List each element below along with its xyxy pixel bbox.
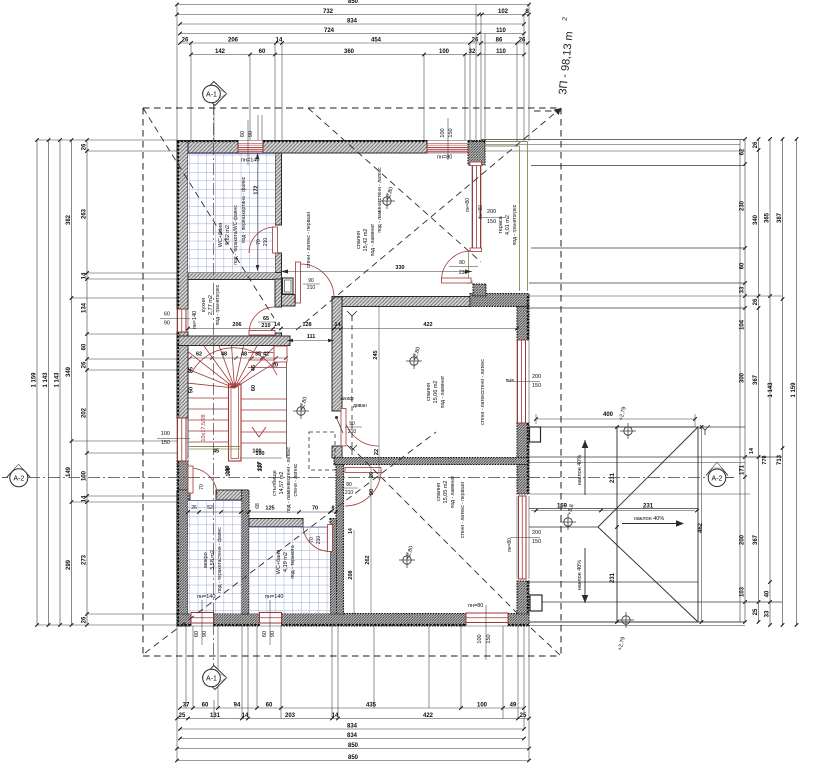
svg-text:422: 422 bbox=[423, 713, 434, 719]
svg-text:834: 834 bbox=[347, 724, 358, 730]
svg-text:200: 200 bbox=[532, 530, 541, 536]
svg-text:365: 365 bbox=[765, 212, 771, 223]
svg-text:713: 713 bbox=[777, 454, 783, 465]
svg-text:110: 110 bbox=[496, 28, 506, 34]
svg-text:137: 137 bbox=[258, 462, 264, 471]
svg-text:100: 100 bbox=[439, 49, 450, 55]
svg-text:231: 231 bbox=[643, 504, 654, 510]
svg-text:4,01 m2: 4,01 m2 bbox=[505, 215, 511, 235]
svg-text:100: 100 bbox=[161, 431, 170, 437]
svg-text:60: 60 bbox=[240, 131, 246, 137]
svg-text:под - теракота/WC-фаянс: под - теракота/WC-фаянс bbox=[233, 205, 239, 265]
svg-text:20: 20 bbox=[272, 363, 278, 369]
svg-text:60: 60 bbox=[740, 262, 746, 269]
svg-text:360: 360 bbox=[344, 49, 355, 55]
svg-text:90: 90 bbox=[248, 131, 254, 137]
svg-text:131: 131 bbox=[210, 713, 221, 719]
svg-text:834: 834 bbox=[347, 19, 358, 25]
svg-text:1 143: 1 143 bbox=[43, 372, 49, 388]
svg-text:мокро: мокро bbox=[203, 552, 209, 567]
svg-text:100: 100 bbox=[477, 703, 488, 709]
svg-text:90: 90 bbox=[369, 489, 375, 495]
svg-text:200: 200 bbox=[487, 209, 496, 215]
svg-text:103: 103 bbox=[740, 586, 746, 597]
svg-text:пн=80: пн=80 bbox=[507, 538, 513, 552]
svg-text:90: 90 bbox=[270, 631, 276, 637]
svg-text:пн=80: пн=80 bbox=[437, 155, 452, 161]
svg-text:пн=80: пн=80 bbox=[468, 603, 483, 609]
svg-text:171: 171 bbox=[740, 464, 746, 475]
svg-text:под - ламинат: под - ламинат bbox=[370, 223, 376, 256]
svg-text:150: 150 bbox=[532, 539, 541, 545]
svg-text:стени - латекс: стени - латекс bbox=[293, 463, 299, 496]
svg-text:26: 26 bbox=[519, 38, 526, 44]
svg-text:203: 203 bbox=[285, 713, 296, 719]
svg-text:422: 422 bbox=[423, 322, 432, 328]
svg-text:387: 387 bbox=[777, 212, 783, 223]
svg-text:пн=80: пн=80 bbox=[478, 205, 484, 219]
svg-text:300: 300 bbox=[740, 372, 746, 383]
svg-text:65: 65 bbox=[263, 316, 269, 322]
svg-text:299: 299 bbox=[66, 559, 72, 570]
svg-text:60: 60 bbox=[251, 385, 257, 391]
svg-text:спалня: спалня bbox=[426, 383, 432, 401]
svg-text:под - ламинатстени - латекс: под - ламинатстени - латекс bbox=[377, 167, 383, 233]
svg-text:90: 90 bbox=[164, 321, 170, 327]
svg-text:94: 94 bbox=[234, 703, 241, 709]
svg-text:пн=: пн= bbox=[506, 378, 514, 384]
svg-text:8: 8 bbox=[331, 506, 334, 512]
svg-text:150: 150 bbox=[161, 440, 170, 446]
svg-text:85: 85 bbox=[189, 367, 195, 373]
svg-text:26: 26 bbox=[182, 38, 189, 44]
svg-text:наклон 40%: наклон 40% bbox=[634, 516, 665, 522]
svg-text:1 159: 1 159 bbox=[791, 382, 797, 398]
svg-text:спалня: спалня bbox=[356, 231, 362, 249]
svg-text:26: 26 bbox=[753, 141, 759, 148]
svg-text:46: 46 bbox=[251, 365, 257, 371]
svg-text:14: 14 bbox=[274, 322, 281, 328]
svg-text:48: 48 bbox=[221, 352, 227, 358]
svg-text:732: 732 bbox=[323, 9, 334, 15]
svg-text:850: 850 bbox=[348, 755, 359, 761]
svg-text:454: 454 bbox=[371, 38, 382, 44]
svg-text:15,06 m2: 15,06 m2 bbox=[433, 381, 439, 404]
svg-text:262: 262 bbox=[365, 555, 371, 564]
svg-text:367: 367 bbox=[753, 374, 759, 385]
svg-text:150: 150 bbox=[486, 634, 492, 643]
svg-text:под - ламинвестени - латекс: под - ламинвестени - латекс bbox=[286, 447, 292, 513]
svg-text:400: 400 bbox=[603, 412, 614, 418]
svg-text:26: 26 bbox=[369, 472, 375, 478]
svg-text:150: 150 bbox=[448, 128, 454, 137]
svg-text:48: 48 bbox=[241, 352, 247, 358]
svg-text:80: 80 bbox=[459, 260, 465, 266]
svg-text:диван: диван bbox=[353, 403, 367, 409]
svg-text:A-2: A-2 bbox=[13, 475, 24, 482]
svg-text:26: 26 bbox=[191, 505, 197, 511]
svg-text:273: 273 bbox=[82, 554, 88, 565]
svg-text:263: 263 bbox=[82, 208, 88, 219]
svg-text:под - теракота: под - теракота bbox=[290, 545, 296, 578]
svg-text:111: 111 bbox=[307, 334, 316, 340]
svg-text:под - ламинат: под - ламинат bbox=[440, 375, 446, 408]
svg-text:109: 109 bbox=[226, 467, 232, 476]
svg-text:стени - латекс - первази: стени - латекс - первази bbox=[460, 482, 466, 538]
svg-text:37: 37 bbox=[183, 703, 190, 709]
svg-text:159: 159 bbox=[557, 504, 568, 510]
svg-text:100: 100 bbox=[255, 451, 264, 457]
svg-text:60: 60 bbox=[194, 631, 200, 637]
svg-text:WC+баня: WC+баня bbox=[218, 223, 224, 247]
svg-text:231: 231 bbox=[610, 572, 616, 583]
svg-text:пн=140: пн=140 bbox=[265, 594, 283, 600]
svg-text:26: 26 bbox=[82, 361, 88, 368]
svg-text:1 143: 1 143 bbox=[768, 382, 774, 398]
svg-text:70: 70 bbox=[312, 506, 318, 512]
svg-text:70: 70 bbox=[309, 537, 315, 543]
svg-text:пн=140: пн=140 bbox=[192, 311, 198, 329]
svg-text:5,82 m2: 5,82 m2 bbox=[225, 225, 231, 245]
svg-text:102: 102 bbox=[498, 9, 509, 15]
svg-text:60: 60 bbox=[266, 703, 273, 709]
svg-text:382: 382 bbox=[66, 214, 72, 225]
svg-text:33: 33 bbox=[765, 610, 771, 617]
svg-text:25: 25 bbox=[753, 608, 759, 615]
svg-text:150: 150 bbox=[532, 383, 541, 389]
svg-text:367: 367 bbox=[753, 534, 759, 545]
svg-text:60: 60 bbox=[262, 631, 268, 637]
svg-text:142: 142 bbox=[215, 49, 226, 55]
svg-text:90: 90 bbox=[308, 278, 314, 284]
svg-text:14: 14 bbox=[749, 447, 755, 454]
svg-text:210: 210 bbox=[307, 285, 316, 291]
svg-text:850: 850 bbox=[348, 0, 359, 5]
svg-text:A-1: A-1 bbox=[206, 676, 217, 683]
svg-text:45: 45 bbox=[213, 449, 219, 455]
svg-text:149: 149 bbox=[66, 466, 72, 477]
svg-text:22: 22 bbox=[374, 449, 380, 455]
svg-text:834: 834 bbox=[347, 733, 358, 739]
svg-text:тераса: тераса bbox=[498, 215, 504, 233]
svg-text:340: 340 bbox=[753, 214, 759, 225]
svg-text:210: 210 bbox=[261, 323, 270, 329]
svg-text:под - ламинат: под - ламинат bbox=[450, 475, 456, 508]
svg-text:50: 50 bbox=[189, 387, 195, 393]
svg-text:850: 850 bbox=[348, 743, 359, 749]
svg-text:25: 25 bbox=[179, 713, 186, 719]
svg-text:26: 26 bbox=[472, 38, 479, 44]
svg-text:25: 25 bbox=[520, 713, 527, 719]
svg-text:33: 33 bbox=[740, 286, 746, 293]
svg-text:62: 62 bbox=[196, 352, 202, 358]
svg-text:60: 60 bbox=[164, 312, 170, 318]
svg-text:пн=80: пн=80 bbox=[465, 198, 471, 212]
svg-text:35: 35 bbox=[255, 352, 261, 358]
svg-text:202: 202 bbox=[82, 407, 88, 418]
svg-text:200: 200 bbox=[532, 374, 541, 380]
svg-text:14,57 m2: 14,57 m2 bbox=[279, 472, 285, 495]
svg-text:330: 330 bbox=[395, 265, 404, 271]
svg-text:230: 230 bbox=[740, 200, 746, 211]
svg-text:206: 206 bbox=[228, 38, 239, 44]
svg-text:208: 208 bbox=[348, 570, 354, 579]
svg-text:210: 210 bbox=[263, 238, 269, 247]
svg-text:68: 68 bbox=[255, 503, 261, 509]
svg-text:26: 26 bbox=[82, 143, 88, 150]
svg-text:70: 70 bbox=[199, 484, 205, 490]
svg-text:104: 104 bbox=[740, 319, 746, 330]
svg-text:349: 349 bbox=[66, 366, 72, 377]
svg-text:60: 60 bbox=[202, 703, 209, 709]
svg-text:70: 70 bbox=[256, 239, 262, 245]
svg-text:40: 40 bbox=[765, 590, 771, 597]
svg-text:206: 206 bbox=[232, 322, 241, 328]
svg-text:724: 724 bbox=[324, 28, 335, 34]
svg-text:15,42 m2: 15,42 m2 bbox=[363, 229, 369, 252]
svg-text:шкаф: шкаф bbox=[340, 396, 353, 402]
svg-text:26: 26 bbox=[753, 298, 759, 305]
svg-text:100: 100 bbox=[477, 634, 483, 643]
svg-text:125: 125 bbox=[265, 506, 274, 512]
svg-text:4,19 m2: 4,19 m2 bbox=[283, 552, 289, 572]
svg-text:3,58 m2: 3,58 m2 bbox=[210, 550, 216, 570]
svg-text:210: 210 bbox=[345, 490, 354, 496]
svg-text:2,77 m2: 2,77 m2 bbox=[208, 295, 214, 315]
svg-text:134: 134 bbox=[82, 302, 88, 313]
svg-text:62: 62 bbox=[740, 148, 746, 155]
svg-text:наклон 40%: наклон 40% bbox=[577, 560, 583, 591]
svg-text:1 159: 1 159 bbox=[32, 372, 38, 388]
svg-text:200: 200 bbox=[740, 534, 746, 545]
svg-text:150: 150 bbox=[487, 219, 496, 225]
svg-text:под - гранитогрес: под - гранитогрес bbox=[512, 204, 518, 245]
svg-text:80: 80 bbox=[346, 482, 352, 488]
svg-text:49: 49 bbox=[510, 703, 517, 709]
svg-text:462: 462 bbox=[698, 522, 704, 533]
svg-text:210: 210 bbox=[316, 536, 322, 545]
svg-text:60: 60 bbox=[259, 49, 266, 55]
svg-text:128: 128 bbox=[302, 322, 311, 328]
svg-text:стени - латекс - первази: стени - латекс - первази bbox=[306, 212, 312, 268]
svg-text:под - гранитогрес: под - гранитогрес bbox=[215, 284, 221, 325]
svg-text:52: 52 bbox=[207, 505, 213, 511]
svg-text:15,05 m2: 15,05 m2 bbox=[443, 481, 449, 504]
svg-text:под - теракотастени - фаянс: под - теракотастени - фаянс bbox=[217, 527, 223, 593]
svg-text:стени - латексстени - латекс: стени - латексстени - латекс bbox=[480, 359, 486, 425]
svg-text:14: 14 bbox=[348, 528, 354, 534]
svg-text:WC+баня: WC+баня bbox=[276, 550, 282, 574]
svg-text:60: 60 bbox=[82, 343, 88, 350]
svg-text:A-1: A-1 bbox=[206, 92, 217, 99]
svg-text:172: 172 bbox=[254, 185, 260, 194]
svg-text:стълбище: стълбище bbox=[272, 470, 278, 496]
svg-text:435: 435 bbox=[366, 703, 377, 709]
svg-text:под - первазкартина - фаянс: под - первазкартина - фаянс bbox=[241, 176, 247, 243]
svg-text:кухня: кухня bbox=[201, 298, 207, 312]
svg-text:100: 100 bbox=[82, 470, 88, 481]
svg-text:26: 26 bbox=[82, 616, 88, 623]
svg-text:90: 90 bbox=[202, 631, 208, 637]
svg-text:86: 86 bbox=[496, 38, 503, 44]
svg-text:спалня: спалня bbox=[436, 483, 442, 501]
svg-text:100: 100 bbox=[440, 128, 446, 137]
svg-text:1 143: 1 143 bbox=[55, 372, 61, 388]
svg-text:A-2: A-2 bbox=[712, 475, 723, 482]
svg-text:110: 110 bbox=[496, 49, 506, 55]
svg-text:пн=140: пн=140 bbox=[197, 594, 215, 600]
svg-text:10x17,5/28: 10x17,5/28 bbox=[201, 414, 207, 441]
svg-text:наклон 40%: наклон 40% bbox=[577, 455, 583, 486]
svg-text:245: 245 bbox=[373, 350, 379, 359]
